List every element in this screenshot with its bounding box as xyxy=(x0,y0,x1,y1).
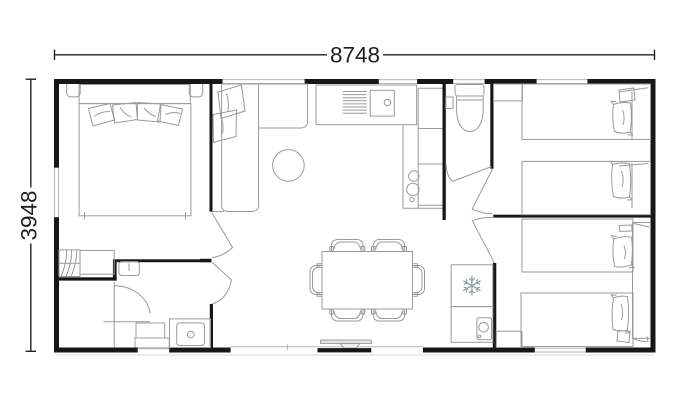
svg-text:8748: 8748 xyxy=(330,43,380,68)
svg-text:3948: 3948 xyxy=(16,190,41,240)
